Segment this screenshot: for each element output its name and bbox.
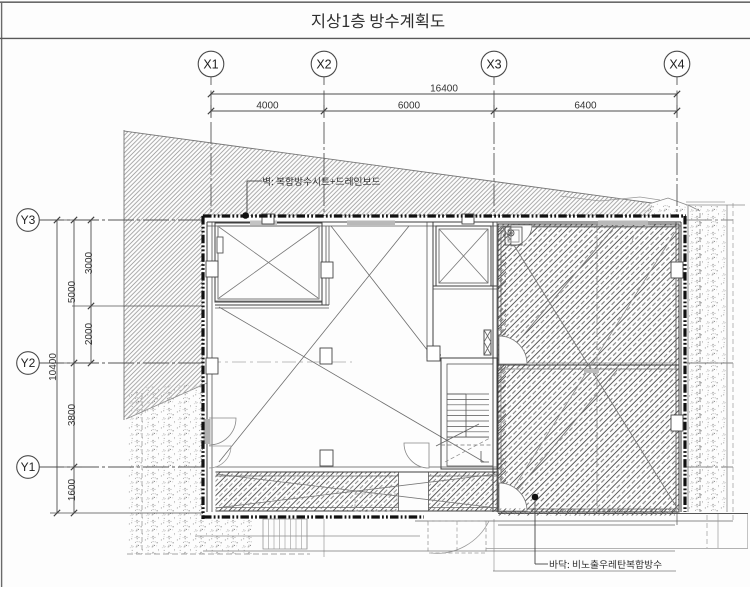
svg-text:10400: 10400 bbox=[48, 353, 59, 381]
svg-text:5000: 5000 bbox=[67, 280, 78, 303]
svg-text:6400: 6400 bbox=[574, 101, 597, 112]
svg-text:X4: X4 bbox=[669, 57, 684, 71]
svg-text:6000: 6000 bbox=[398, 101, 421, 112]
svg-text:3800: 3800 bbox=[67, 403, 78, 426]
svg-text:3000: 3000 bbox=[84, 251, 95, 274]
svg-text:Y3: Y3 bbox=[21, 213, 36, 227]
svg-text:X3: X3 bbox=[486, 57, 501, 71]
svg-text:1600: 1600 bbox=[67, 478, 78, 501]
svg-text:Y1: Y1 bbox=[21, 460, 36, 474]
svg-text:X1: X1 bbox=[203, 57, 218, 71]
svg-text:4000: 4000 bbox=[256, 101, 279, 112]
svg-text:16400: 16400 bbox=[430, 83, 458, 94]
svg-text:X2: X2 bbox=[316, 57, 331, 71]
svg-text:2000: 2000 bbox=[84, 322, 95, 345]
svg-text:Y2: Y2 bbox=[21, 356, 36, 370]
